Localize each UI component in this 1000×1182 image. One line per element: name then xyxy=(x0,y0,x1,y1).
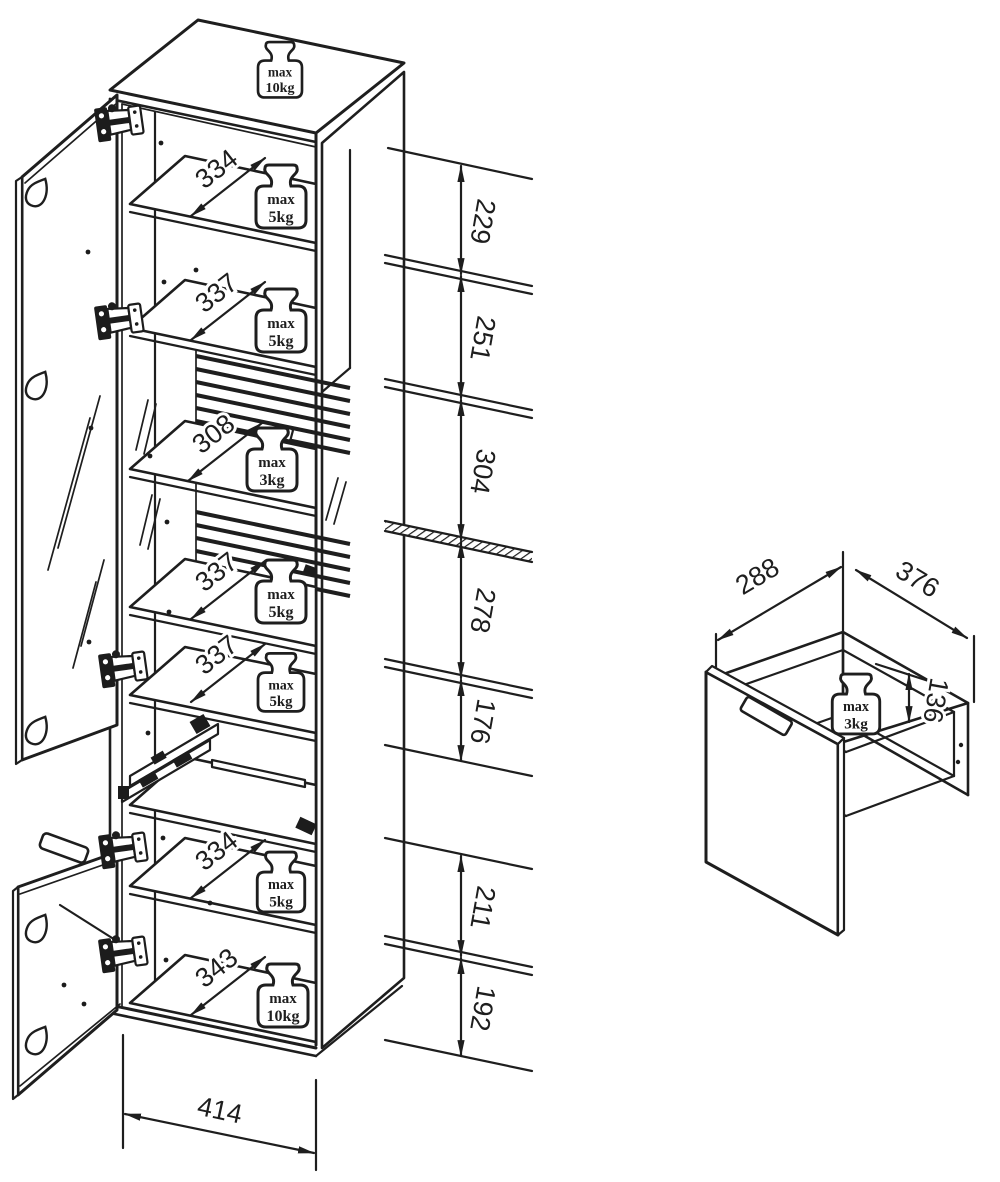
hinge-icon xyxy=(98,827,149,869)
technical-drawing-svg: 334 337 308 337 337 334 343 max 10kg max… xyxy=(0,0,1000,1182)
height-176: 176 xyxy=(464,697,501,747)
svg-text:max: max xyxy=(268,877,295,893)
height-192: 192 xyxy=(464,984,501,1034)
weight-icon-shelf-5: max 5kg xyxy=(258,653,304,711)
height-278: 278 xyxy=(464,586,501,636)
svg-text:max: max xyxy=(267,316,295,332)
drawer-detail: 288 376 136 xyxy=(706,552,974,935)
svg-text:max: max xyxy=(268,64,293,79)
svg-text:3kg: 3kg xyxy=(260,472,285,489)
svg-text:max: max xyxy=(843,699,870,715)
svg-text:5kg: 5kg xyxy=(269,604,294,621)
furniture-dimension-diagram: 334 337 308 337 337 334 343 max 10kg max… xyxy=(0,0,1000,1182)
height-229: 229 xyxy=(464,197,501,247)
weight-icon-shelf-4: max 5kg xyxy=(256,560,306,623)
svg-text:max: max xyxy=(269,991,297,1007)
svg-text:5kg: 5kg xyxy=(269,333,294,350)
svg-text:5kg: 5kg xyxy=(270,694,294,710)
svg-text:max: max xyxy=(268,677,293,692)
svg-text:5kg: 5kg xyxy=(269,209,294,226)
svg-text:max: max xyxy=(267,192,295,208)
height-304: 304 xyxy=(464,447,501,497)
height-dimension-chain: 229 251 304 278 176 211 192 xyxy=(385,148,532,1071)
width-414: 414 xyxy=(195,1091,245,1130)
svg-text:max: max xyxy=(258,455,286,471)
door-handle xyxy=(39,832,90,863)
svg-text:max: max xyxy=(267,587,295,603)
svg-text:3kg: 3kg xyxy=(844,715,868,732)
height-251: 251 xyxy=(464,314,501,364)
svg-text:10kg: 10kg xyxy=(267,1008,300,1025)
svg-text:5kg: 5kg xyxy=(269,893,293,910)
svg-text:10kg: 10kg xyxy=(266,80,295,96)
drawer-width-288: 288 xyxy=(730,552,784,601)
width-dimension: 414 xyxy=(123,1035,316,1170)
height-211: 211 xyxy=(464,884,501,932)
cabinet-side-panel xyxy=(322,72,404,1048)
